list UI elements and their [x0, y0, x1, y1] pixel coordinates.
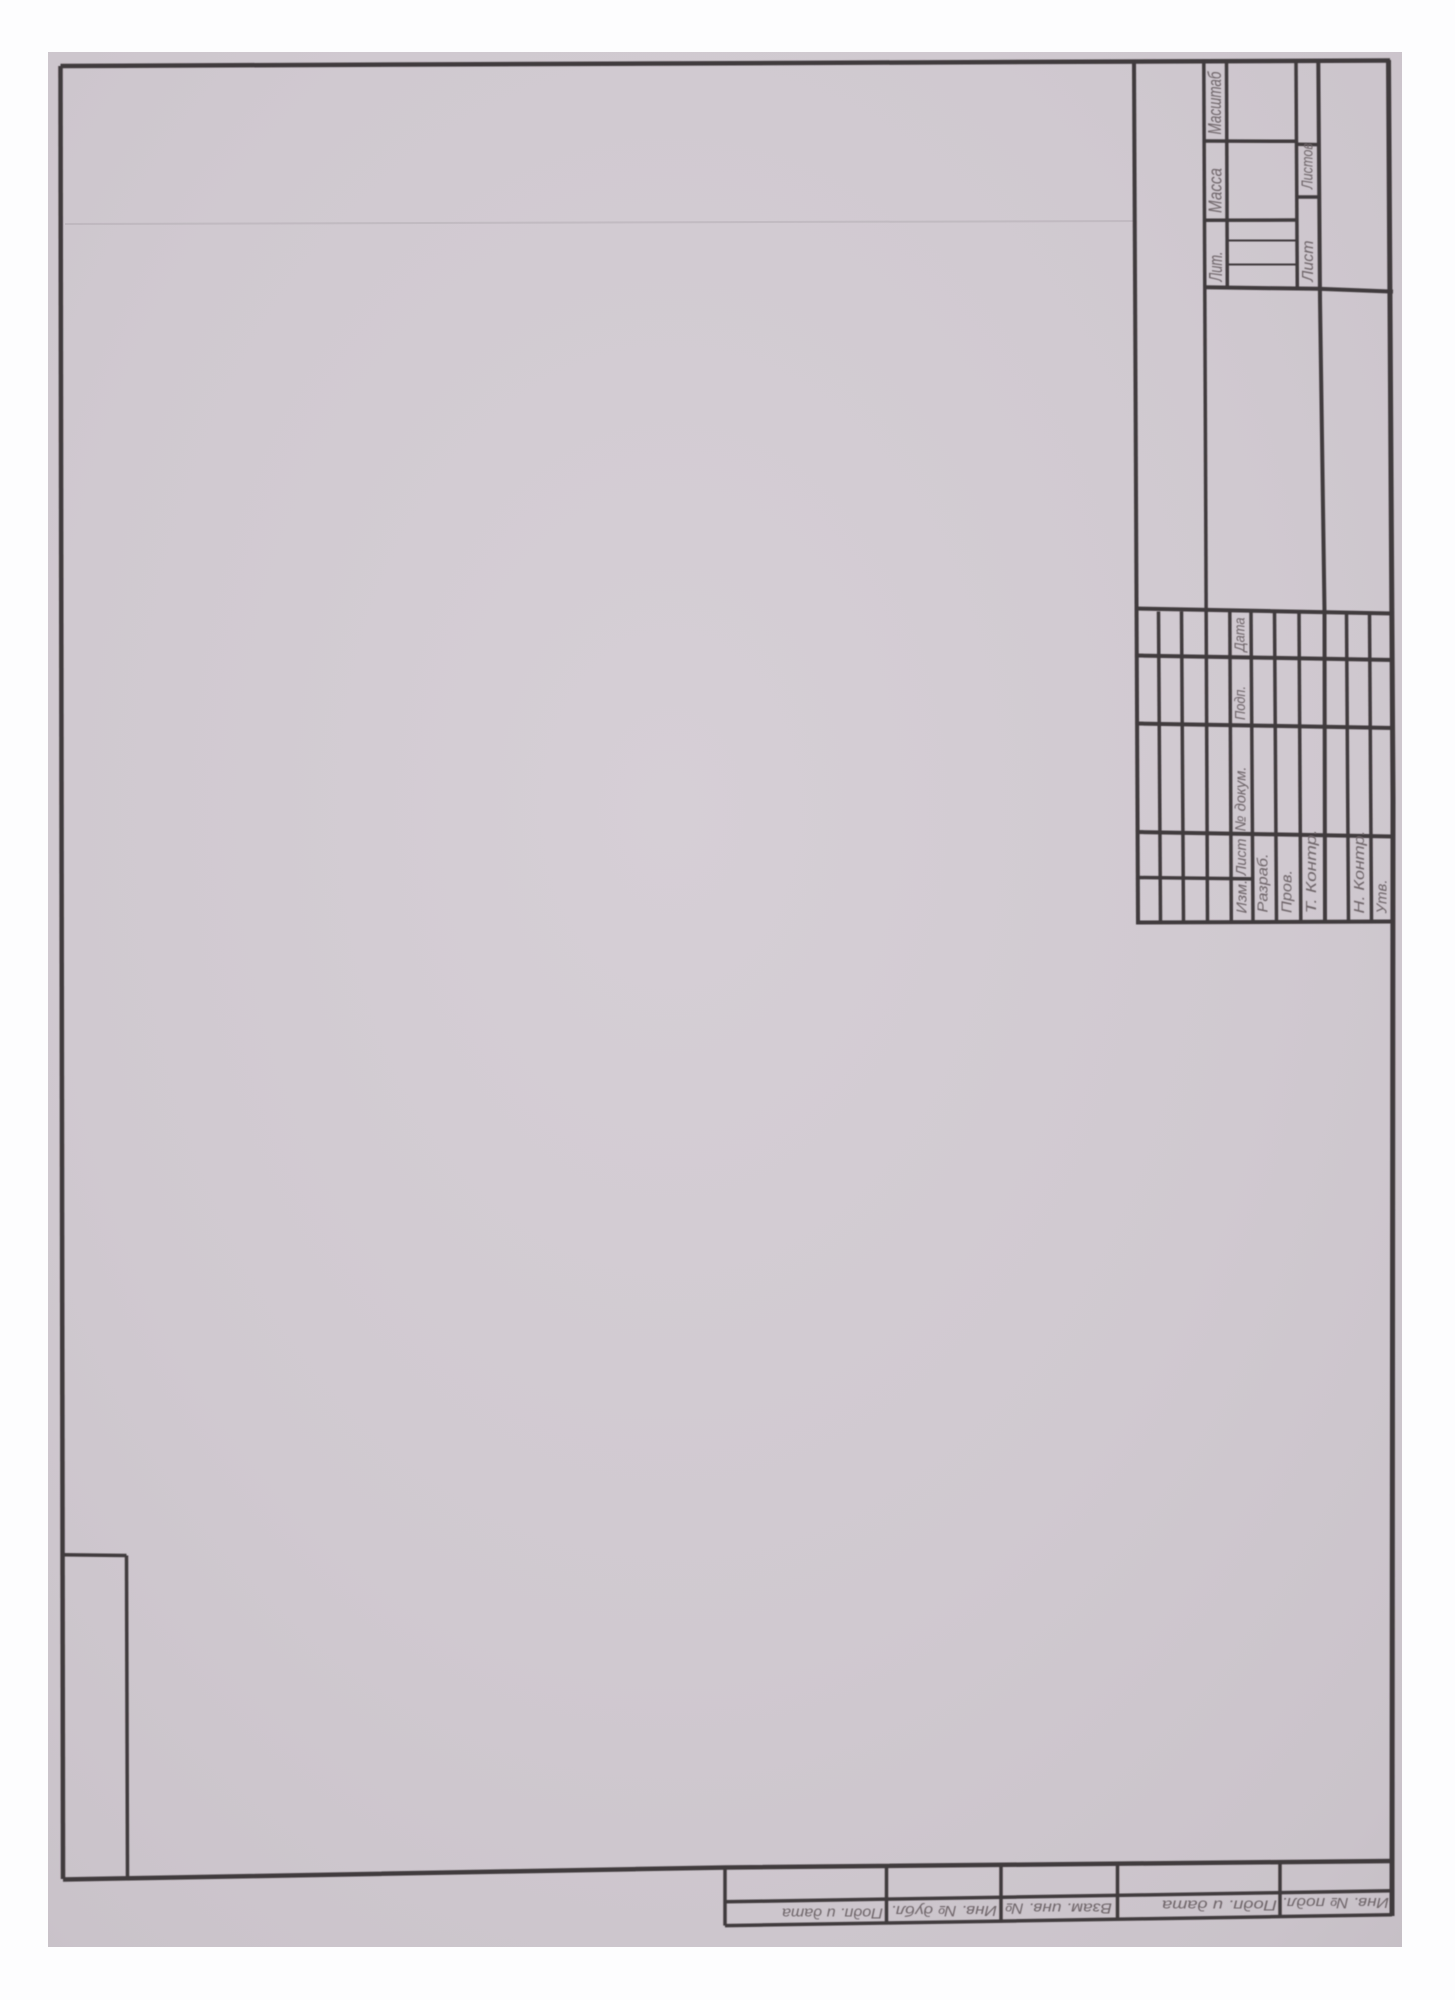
svg-text:Подп. и дата: Подп. и дата: [782, 1904, 883, 1921]
svg-text:Лист: Лист: [1233, 839, 1250, 877]
svg-text:Н. Контр.: Н. Контр.: [1351, 831, 1368, 914]
svg-text:Изм.: Изм.: [1234, 880, 1251, 914]
svg-text:Инв. № подл.: Инв. № подл.: [1282, 1894, 1389, 1911]
svg-text:Пров.: Пров.: [1279, 870, 1296, 913]
svg-text:Масса: Масса: [1206, 168, 1226, 213]
svg-text:Лит.: Лит.: [1206, 252, 1226, 283]
svg-text:Разраб.: Разраб.: [1255, 854, 1272, 913]
svg-text:Дата: Дата: [1232, 618, 1249, 654]
svg-text:Подп. и дата: Подп. и дата: [1162, 1897, 1277, 1914]
svg-text:Лист: Лист: [1300, 240, 1317, 282]
svg-text:№ докум.: № докум.: [1233, 767, 1250, 832]
svg-text:Подп.: Подп.: [1232, 686, 1249, 720]
svg-text:Утв.: Утв.: [1374, 880, 1391, 915]
svg-text:Масштаб: Масштаб: [1205, 71, 1225, 135]
svg-text:Листов: Листов: [1299, 143, 1316, 190]
svg-text:Взам. инв. №: Взам. инв. №: [1005, 1899, 1112, 1916]
svg-text:Инв. № дубл.: Инв. № дубл.: [891, 1902, 997, 1919]
svg-text:Т. Контр.: Т. Контр.: [1303, 830, 1320, 914]
